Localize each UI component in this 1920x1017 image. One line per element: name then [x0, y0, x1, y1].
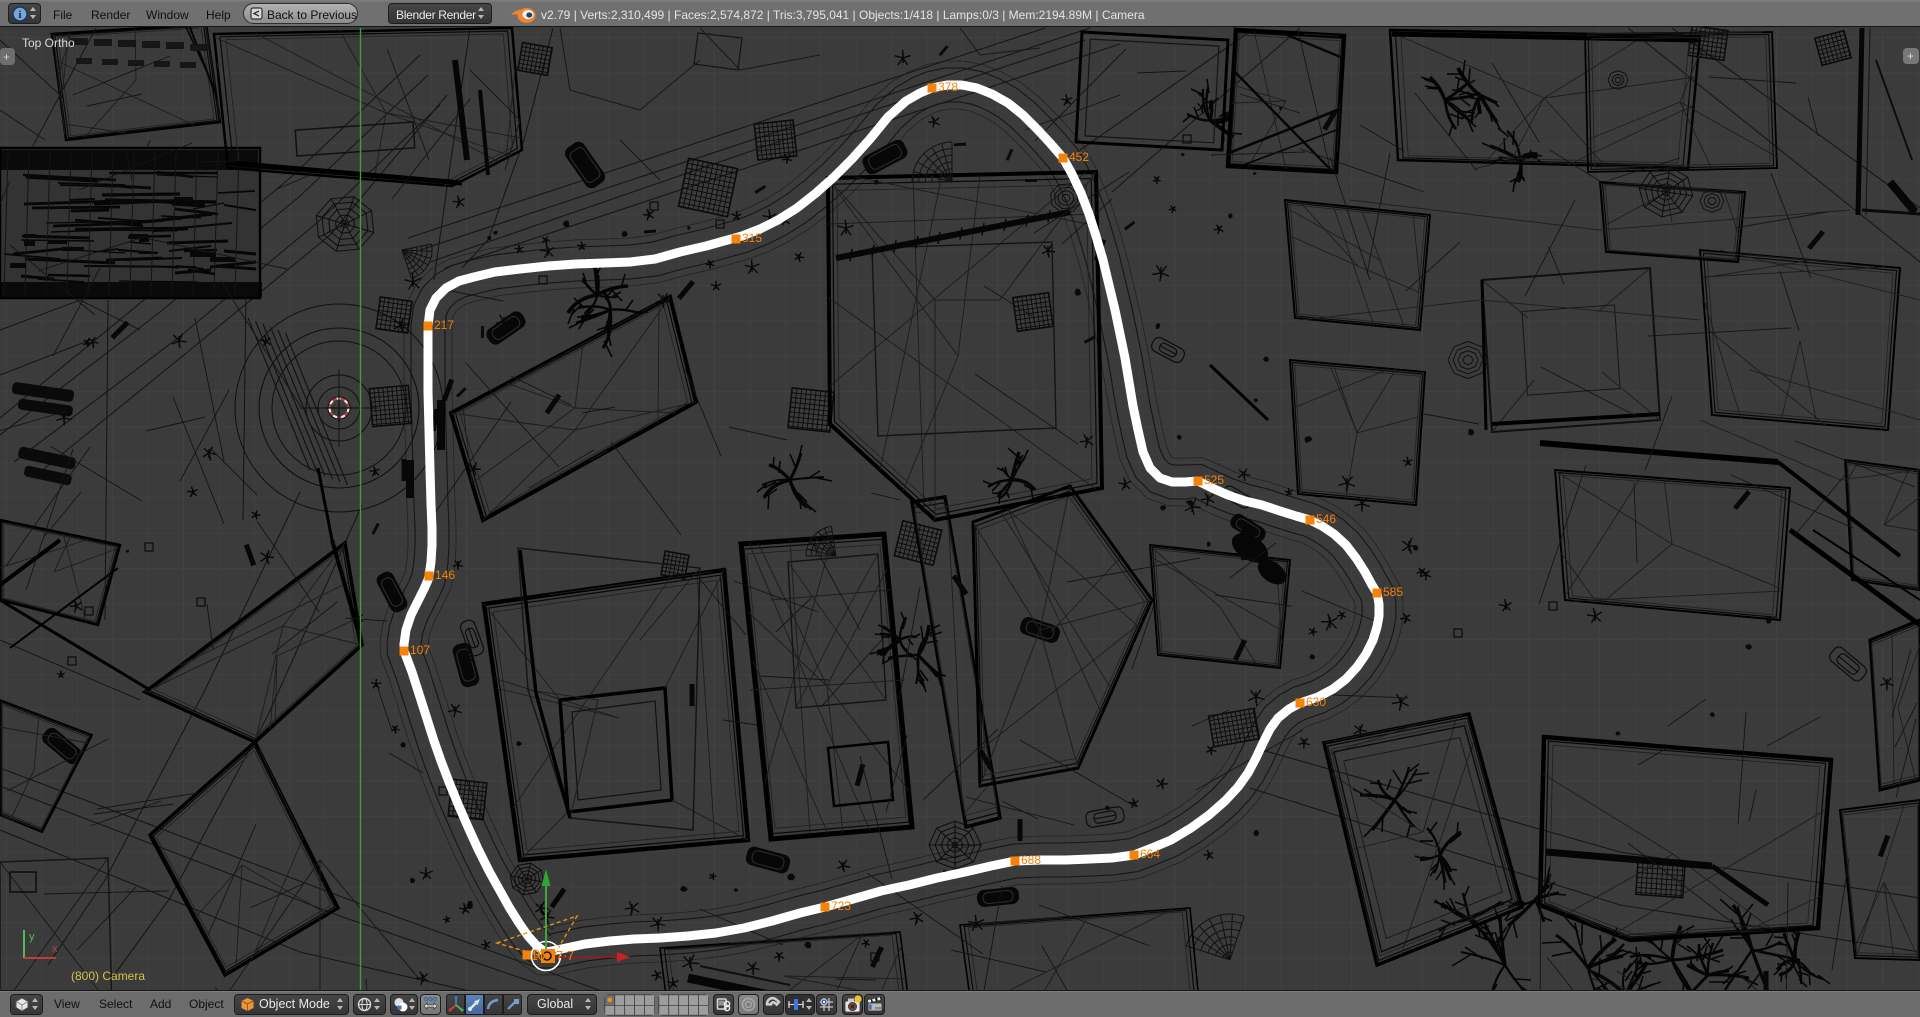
svg-text:664: 664	[1140, 847, 1160, 861]
svg-text:Top Ortho: Top Ortho	[22, 36, 75, 50]
svg-text:525: 525	[1204, 473, 1224, 487]
svg-text:630: 630	[1306, 695, 1326, 709]
svg-text:+: +	[1907, 49, 1914, 63]
svg-text:723: 723	[831, 899, 851, 913]
svg-text:7·7: 7·7	[556, 949, 574, 963]
svg-text:452: 452	[1069, 150, 1089, 164]
svg-text:+: +	[3, 50, 10, 64]
svg-text:(800) Camera: (800) Camera	[71, 969, 145, 983]
svg-text:107: 107	[410, 643, 430, 657]
svg-text:146: 146	[435, 568, 455, 582]
svg-text:688: 688	[1021, 853, 1041, 867]
svg-text:378: 378	[938, 80, 958, 94]
svg-text:x: x	[52, 943, 58, 955]
svg-text:546: 546	[1316, 512, 1336, 526]
svg-text:315: 315	[742, 231, 762, 245]
svg-text:217: 217	[434, 318, 454, 332]
svg-text:10: 10	[531, 949, 545, 963]
svg-text:585: 585	[1383, 585, 1403, 599]
svg-text:i: i	[18, 9, 21, 21]
svg-text:y: y	[29, 931, 35, 943]
